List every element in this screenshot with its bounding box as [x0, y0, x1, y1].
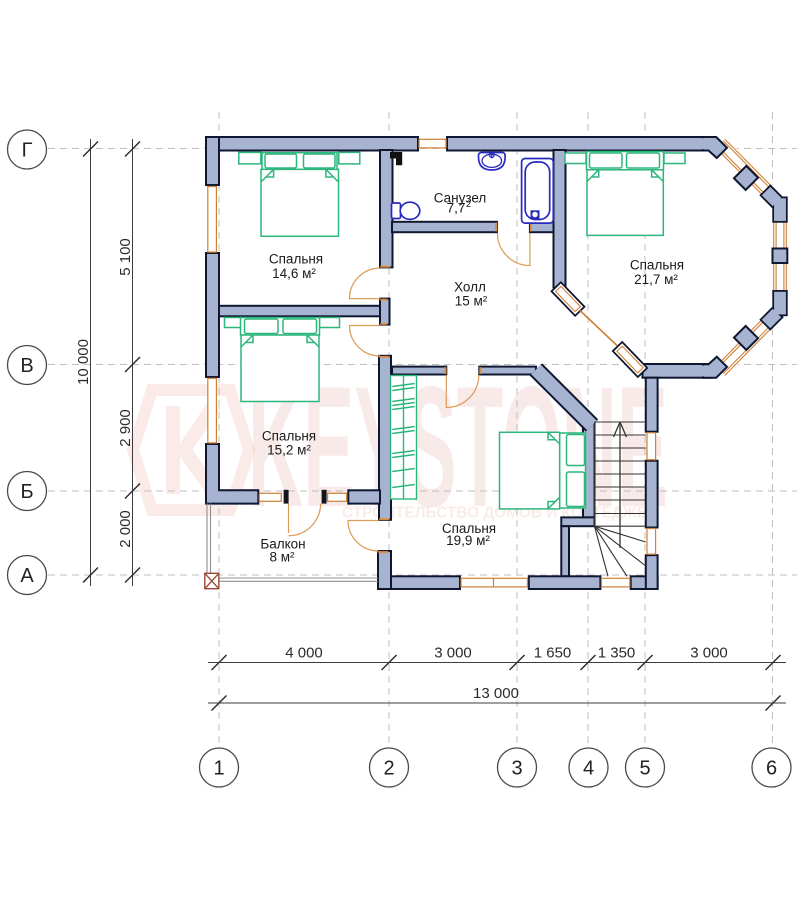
svg-text:4: 4: [583, 758, 594, 780]
svg-text:13 000: 13 000: [473, 685, 519, 702]
svg-text:4 000: 4 000: [285, 645, 323, 662]
svg-text:В: В: [20, 355, 33, 377]
svg-text:15 м²: 15 м²: [455, 294, 488, 309]
svg-text:15,2 м²: 15,2 м²: [267, 443, 311, 458]
svg-text:2: 2: [383, 758, 394, 780]
svg-text:19,9 м²: 19,9 м²: [446, 533, 490, 548]
svg-text:1 650: 1 650: [534, 645, 572, 662]
svg-text:А: А: [20, 565, 34, 587]
svg-text:5: 5: [639, 758, 650, 780]
svg-text:8 м²: 8 м²: [269, 550, 295, 565]
svg-text:Спальня: Спальня: [630, 258, 684, 273]
svg-text:21,7 м²: 21,7 м²: [634, 272, 678, 287]
svg-text:Холл: Холл: [454, 280, 486, 295]
svg-text:6: 6: [766, 758, 777, 780]
svg-text:2: 2: [466, 199, 471, 209]
svg-text:14,6 м²: 14,6 м²: [272, 266, 316, 281]
svg-text:Спальня: Спальня: [269, 252, 323, 267]
svg-text:3: 3: [511, 758, 522, 780]
svg-text:3 000: 3 000: [434, 645, 472, 662]
svg-text:5 100: 5 100: [117, 238, 134, 276]
svg-text:3 000: 3 000: [690, 645, 728, 662]
svg-text:2 000: 2 000: [117, 510, 134, 548]
svg-text:2 900: 2 900: [117, 409, 134, 447]
svg-text:1: 1: [213, 758, 224, 780]
svg-text:10 000: 10 000: [75, 339, 92, 385]
svg-text:1 350: 1 350: [598, 645, 636, 662]
svg-text:Г: Г: [22, 140, 33, 162]
svg-text:Б: Б: [20, 481, 33, 503]
svg-text:7,7: 7,7: [447, 201, 466, 216]
svg-text:Спальня: Спальня: [262, 429, 316, 444]
